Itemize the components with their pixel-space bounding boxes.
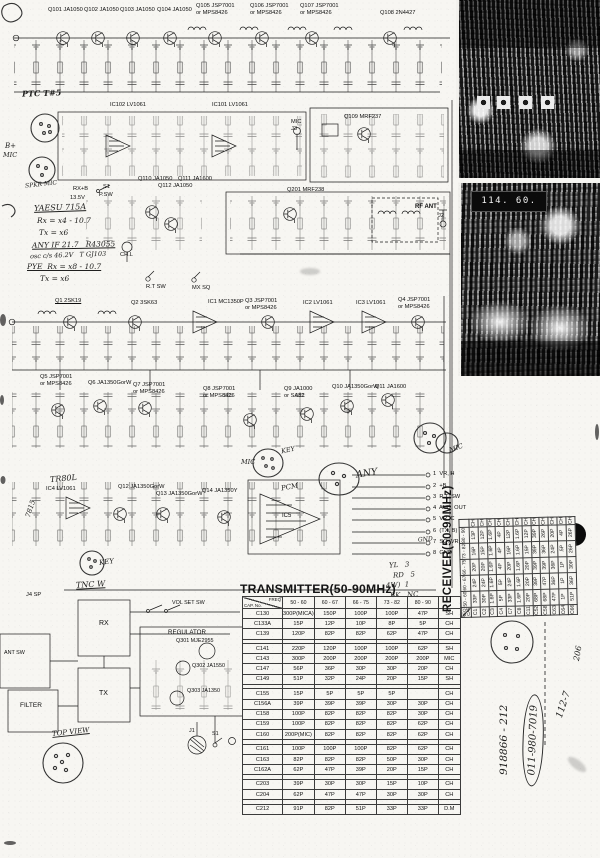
pin-label: 1 VR, H <box>433 471 455 478</box>
cap-value-cell: 82P <box>376 730 407 740</box>
handwritten-serial: 918866 - 212 <box>498 705 510 775</box>
handwritten-note: TNC W <box>76 579 106 590</box>
connector-label: J2 <box>438 213 444 220</box>
cap-value-cell: 68P <box>532 589 541 605</box>
cap-row: C130300P(MICA)150P100P100P47PSH <box>243 609 461 619</box>
cap-value-cell: 51P <box>568 588 577 604</box>
cap-number-cell: C159 <box>243 719 283 729</box>
corner-top-label: FREQ <box>269 597 281 602</box>
cap-value-cell: 30P <box>567 556 576 572</box>
cap-value-cell: 62P <box>407 719 438 729</box>
cap-value-cell: 4P <box>496 558 505 574</box>
cap-value-cell: 1.6P <box>487 527 496 543</box>
cap-type-cell: CH <box>438 664 460 674</box>
cap-value-cell: 12P <box>504 526 513 542</box>
cap-value-cell: 1.6P <box>514 542 523 558</box>
cap-value-cell: 1.6P <box>488 558 497 574</box>
cap-value-cell: 5P <box>314 689 345 699</box>
cap-number-cell: C203 <box>243 779 283 789</box>
component-label: IC1 MC1350P <box>208 299 244 306</box>
cap-value-cell: 20P <box>523 573 532 589</box>
cap-value-cell: 82P <box>345 719 376 729</box>
photo-dark-band <box>461 341 600 376</box>
cap-row: C158100P82P82P82P30PCH <box>243 709 461 719</box>
cap-value-cell: 36P <box>549 557 558 573</box>
cap-type-cell: CH <box>438 619 460 629</box>
cap-number-cell: C158 <box>243 709 283 719</box>
cap-value-cell: 20P <box>523 557 532 573</box>
switch-label: R.T SW <box>146 284 166 291</box>
cap-type-cell: CH <box>438 709 460 719</box>
cap-row: C6651P36P30P26P26PCH <box>566 516 577 615</box>
cap-number-cell: C143 <box>243 654 283 664</box>
cap-value-cell: 82P <box>345 709 376 719</box>
cap-number-cell: C161 <box>243 744 283 754</box>
photo-dark-band <box>459 0 600 48</box>
cap-number-cell: C2 <box>480 606 489 617</box>
component-label: Q5 JSP7001 or MPS8426 <box>40 374 72 388</box>
cap-value-cell: 24P <box>345 674 376 684</box>
cap-number-cell: C63 <box>550 605 559 616</box>
cap-row: C14756P36P30P30P20PCH <box>243 664 461 674</box>
trimmer-capacitor <box>497 96 510 109</box>
cap-value-cell: 100P <box>345 744 376 754</box>
cap-type-cell: CH <box>539 517 548 526</box>
cap-value-cell: 1P <box>558 557 567 573</box>
supply-label: 13.5V <box>70 195 85 202</box>
cap-row: C20462P47P47P30P30PCH <box>243 790 461 800</box>
cap-row: C21291P82P51P33P33PD.M <box>243 804 461 814</box>
cap-number-cell: C147 <box>243 664 283 674</box>
cap-value-cell: 30P <box>376 790 407 800</box>
pcb-photo-top <box>456 0 600 178</box>
cap-value-cell: 200P(MIC) <box>283 730 315 740</box>
component-label: IC3 LV1061 <box>356 300 386 307</box>
cap-value-cell: 15P <box>522 542 531 558</box>
cap-value-cell: 12P <box>314 619 345 629</box>
cap-value-cell: 39P <box>532 557 541 573</box>
cap-value-cell: 1.6P <box>487 542 496 558</box>
cap-number-cell: C204 <box>243 790 283 800</box>
cap-value-cell: 5P <box>497 590 506 606</box>
freq-column-header: 60 - 67 <box>314 597 345 609</box>
freq-column-header: 66 - 75 <box>460 559 470 575</box>
component-label: Q9 JA1000 or SA82 <box>284 386 312 400</box>
component-label: Q8 JSP7001 or MPS8426 <box>203 386 235 400</box>
cap-type-cell: SH <box>438 644 460 654</box>
cap-value-cell: 24P <box>506 574 515 590</box>
cap-value-cell: 30P <box>376 664 407 674</box>
cap-value-cell: 20P <box>548 525 557 541</box>
cap-number-cell: C163 <box>243 754 283 764</box>
cap-number-cell: C3 <box>489 606 498 617</box>
corner-bottom-label: CAP. No. <box>244 603 262 608</box>
cap-value-cell: 15P <box>283 619 315 629</box>
cap-value-cell: 1.6P <box>514 574 523 590</box>
mic-jack-label: MIC J3 <box>291 119 301 133</box>
cap-value-cell: 36P <box>540 541 549 557</box>
cap-value-cell: 47P <box>550 589 559 605</box>
transmitter-cap-table: FREQCAP. No.50 - 6060 - 6766 - 7573 - 82… <box>242 596 461 815</box>
cap-value-cell: 20P <box>407 664 438 674</box>
cap-type-cell: CH <box>438 765 460 775</box>
cap-value-cell: 33P <box>407 804 438 814</box>
cap-value-cell: 62P <box>407 644 438 654</box>
handwritten-note: YL 3 <box>389 560 410 569</box>
cap-value-cell: 15P <box>407 765 438 775</box>
component-label: Q7 JSP7001 or MPS8426 <box>133 382 165 396</box>
trimmer-capacitor <box>541 96 554 109</box>
cap-number-cell: C149 <box>243 674 283 684</box>
freq-column-header: 80 - 90 <box>407 597 438 609</box>
handwritten-note: RD 5 <box>393 570 415 579</box>
cap-row: C139120P82P82P62P47PCH <box>243 629 461 639</box>
cap-value-cell: 82P <box>314 754 345 764</box>
cap-type-cell: CH <box>438 689 460 699</box>
cap-type-cell: CH <box>548 517 557 526</box>
component-label: Q108 2N4427 <box>380 10 415 17</box>
cap-value-cell: 82P <box>314 709 345 719</box>
corner-bottom-label: CAP. No. <box>465 607 470 616</box>
component-label: Q104 JA1050 <box>157 7 192 14</box>
cap-value-cell: 4P <box>557 525 566 541</box>
component-label: Q13 JA1350GorW <box>156 491 202 498</box>
cap-number-cell: C155 <box>243 689 283 699</box>
tx-block-label: TX <box>99 690 108 699</box>
cap-value-cell: 30P <box>376 699 407 709</box>
cap-value-cell: 47P <box>314 790 345 800</box>
cap-type-cell: CH <box>438 790 460 800</box>
component-label: Q107 JSP7001 or MPS8426 <box>300 3 339 17</box>
component-label: Q201 MRF238 <box>287 187 324 194</box>
cap-row: C14951P32P24P20P15PSH <box>243 674 461 684</box>
pcb-photo-middle: 114. 60. <box>458 183 600 376</box>
component-label: Q10 JA1350GorW <box>332 384 378 391</box>
cap-value-cell: 100P <box>345 644 376 654</box>
cap-value-cell: 120P <box>283 629 315 639</box>
cap-row: C15515P5P5P5PCH <box>243 689 461 699</box>
cap-value-cell: 39P <box>283 699 315 709</box>
component-label: Q105 JSP7001 or MPS8426 <box>196 3 235 17</box>
handwritten-note: MIC <box>241 458 255 466</box>
cap-value-cell: 100P <box>283 744 315 754</box>
cap-row: C160200P(MIC)82P82P82P62PCH <box>243 730 461 740</box>
cap-value-cell: 51P <box>283 674 315 684</box>
trimmer-capacitor <box>477 96 490 109</box>
freq-column-header: 73 - 82 <box>460 543 470 559</box>
cap-value-cell: 300P(MICA) <box>283 609 315 619</box>
cap-value-cell: 39P <box>540 557 549 573</box>
cap-value-cell: 30P <box>314 779 345 789</box>
cap-value-cell: 82P <box>376 709 407 719</box>
cap-type-cell: CH <box>513 517 522 526</box>
cap-value-cell: 15P <box>376 779 407 789</box>
cap-number-cell: C141 <box>243 644 283 654</box>
cap-value-cell: 82P <box>283 754 315 764</box>
component-label: Q112 JA1050 <box>158 183 192 190</box>
cap-value-cell: 39P <box>345 699 376 709</box>
cap-value-cell: 8P <box>376 619 407 629</box>
cap-type-cell: CH <box>469 519 478 528</box>
cap-value-cell: 15P <box>283 689 315 699</box>
cap-value-cell: 26P <box>566 524 575 540</box>
transmitter-table-title: TRANSMITTER(50-90MHz) <box>240 582 396 596</box>
cap-value-cell: 82P <box>376 744 407 754</box>
cap-row: C159100P82P82P82P62PCH <box>243 719 461 729</box>
cap-type-cell: CH <box>478 518 487 527</box>
cap-value-cell: 39P <box>345 765 376 775</box>
switch-label: P.SW <box>99 192 113 199</box>
handwritten-note: Tx = x6 <box>39 228 68 237</box>
freq-column-header: 80 - 90 <box>459 527 469 543</box>
rail-label: RX+B <box>73 186 88 193</box>
cap-value-cell: 20P <box>376 674 407 684</box>
cap-value-cell: 20P <box>505 558 514 574</box>
cap-number-cell: C139 <box>243 629 283 639</box>
cap-value-cell: 5P <box>376 689 407 699</box>
component-label: IC5 <box>282 513 291 521</box>
cap-number-cell: C4 <box>498 606 507 617</box>
cap-type-cell: CH <box>486 518 495 527</box>
trimmer-capacitor <box>519 96 532 109</box>
cap-value-cell: 39P <box>283 779 315 789</box>
cap-value-cell: 12P <box>478 527 487 543</box>
cap-value-cell: 51P <box>345 804 376 814</box>
component-label: Q103 JA1050 <box>120 7 155 14</box>
switch-label: S1 <box>103 184 110 191</box>
handwritten-note: MIC <box>3 151 17 159</box>
photo-highlight <box>469 301 531 343</box>
cap-number-cell: C66 <box>568 604 577 615</box>
cap-value-cell: 62P <box>283 790 315 800</box>
speaker-jack-label: J4 SP <box>26 592 41 599</box>
cap-value-cell: 26P <box>539 525 548 541</box>
cap-type-cell: CH <box>438 779 460 789</box>
cap-value-cell: 30P <box>345 664 376 674</box>
component-label: Q1 2SK19 <box>55 298 81 305</box>
handwritten-note: GND <box>418 535 433 543</box>
cap-type-cell: CH <box>504 518 513 527</box>
regulator-label: REGULATOR <box>168 629 206 637</box>
cap-number-cell: C1 <box>471 607 480 618</box>
cap-number-cell: C156A <box>243 699 283 709</box>
cap-value-cell: 100P <box>283 709 315 719</box>
cap-value-cell: 5P <box>345 689 376 699</box>
cap-value-cell: 20P <box>376 765 407 775</box>
cap-type-cell: CH <box>438 699 460 709</box>
handwritten-note: ANY IF 21.7 R43055 <box>32 239 115 249</box>
cap-value-cell: 24P <box>549 541 558 557</box>
component-label: Q109 MRF237 <box>344 114 381 121</box>
type-column-header <box>459 519 469 528</box>
component-label: IC4 LV1061 <box>46 486 76 493</box>
cap-value-cell: 30P <box>480 590 489 606</box>
cap-value-cell: 36P <box>567 572 576 588</box>
cap-value-cell: 20P <box>479 559 488 575</box>
receiver-table-title: RECEIVER(50-90MHz) <box>442 485 454 612</box>
photo-dark-band <box>459 150 600 178</box>
component-label: IC2 LV1061 <box>303 300 333 307</box>
cap-value-cell: 200P <box>345 654 376 664</box>
cap-value-cell: 56P <box>283 664 315 674</box>
cap-row: C156A39P39P39P30P30PCH <box>243 699 461 709</box>
cap-value-cell: 4P <box>496 526 505 542</box>
component-label: Q106 JSP7001 or MPS8426 <box>250 3 289 17</box>
switch-label: VOL SET SW <box>172 600 205 607</box>
cap-type-cell: CH <box>557 516 566 525</box>
cap-value-cell: 100P <box>376 644 407 654</box>
cap-value-cell: 15P <box>407 674 438 684</box>
cap-value-cell: 1.6P <box>488 590 497 606</box>
cap-value-cell: 1.6P <box>514 558 523 574</box>
cap-value-cell: 120P <box>314 644 345 654</box>
table-corner-cell: FREQCAP. No. <box>243 597 283 609</box>
header-row: FREQCAP. No.50 - 6060 - 6766 - 7573 - 82… <box>243 597 461 609</box>
cap-value-cell: 47P <box>407 609 438 619</box>
cap-value-cell: 100P <box>283 719 315 729</box>
cap-value-cell: 1P <box>559 588 568 604</box>
cap-value-cell: 100P <box>345 609 376 619</box>
cap-number-cell: C162A <box>243 765 283 775</box>
switch-label: ANT SW <box>4 650 25 657</box>
cap-value-cell: 62P <box>407 744 438 754</box>
cap-value-cell: 62P <box>283 765 315 775</box>
rx-block-label: RX <box>99 620 109 629</box>
cap-number-cell: C52 <box>533 605 542 616</box>
cap-value-cell: 39P <box>314 699 345 709</box>
handwritten-note: PYE Rx = x8 - 10.7 <box>27 262 101 271</box>
cap-value-cell: 5P <box>407 619 438 629</box>
cap-number-cell: C133A <box>243 619 283 629</box>
cap-number-cell: C58 <box>542 605 551 616</box>
cap-value-cell: 47P <box>541 573 550 589</box>
cap-number-cell: C64 <box>559 604 568 615</box>
cap-value-cell: 1.6P <box>515 590 524 606</box>
component-label: Q102 JA1050 <box>84 7 119 14</box>
component-label: Q2 3SK63 <box>131 300 157 307</box>
cap-value-cell: 20P <box>524 589 533 605</box>
cap-value-cell: .5P <box>557 541 566 557</box>
cap-value-cell: 39P <box>531 541 540 557</box>
handwritten-note: YAESU 715A <box>34 202 86 213</box>
cap-value-cell: 200P <box>407 654 438 664</box>
cap-value-cell: 220P <box>283 644 315 654</box>
component-label: Q4 JSP7001 or MPS8426 <box>398 297 430 311</box>
cap-value-cell: 47P <box>314 765 345 775</box>
cap-value-cell: 33P <box>506 590 515 606</box>
cap-value-cell: 82P <box>345 629 376 639</box>
cap-value-cell: 68P <box>541 589 550 605</box>
scanned-schematic-page: 114. 60. Q101 JA1050 Q102 JA1050 Q103 JA… <box>0 0 600 858</box>
cap-type-cell: CH <box>530 517 539 526</box>
component-label: Q3 JSP7001 or MPS8426 <box>245 298 277 312</box>
component-label: Q6 JA1350GorW <box>88 380 131 387</box>
freq-column-header: 73 - 82 <box>376 597 407 609</box>
cap-value-cell: 24P <box>470 575 479 591</box>
freq-column-header: 50 - 60 <box>461 591 471 607</box>
cap-value-cell: 47P <box>345 790 376 800</box>
receiver-cap-table: FREQCAP. No.50 - 6060 - 6766 - 7573 - 82… <box>458 516 577 618</box>
cap-number-cell: C212 <box>243 804 283 814</box>
lamp-label: CH.L <box>120 252 133 259</box>
cap-value-cell: 24P <box>479 575 488 591</box>
cap-number-cell: C11 <box>524 605 533 616</box>
cap-row: C141220P120P100P100P62PSH <box>243 644 461 654</box>
cap-value-cell: 50P <box>376 754 407 764</box>
cap-type-cell: CH <box>522 517 531 526</box>
cap-type-cell: D.M <box>438 804 460 814</box>
component-label: Q101 JA1050 <box>48 7 83 14</box>
cap-value-cell: 20P <box>470 559 479 575</box>
cap-value-cell: 150P <box>314 609 345 619</box>
cap-value-cell: 32P <box>314 674 345 684</box>
cap-value-cell: 91P <box>283 804 315 814</box>
cap-type-cell: CH <box>438 730 460 740</box>
cap-value-cell: 82P <box>345 754 376 764</box>
cap-number-cell: C130 <box>243 609 283 619</box>
component-label: Q302 JA1550 <box>192 663 225 670</box>
cap-value-cell: 39P <box>531 525 540 541</box>
component-label: Q11 JA1600 <box>375 384 406 391</box>
cap-value-cell <box>407 689 438 699</box>
cap-value-cell: 1.6P <box>513 526 522 542</box>
cap-value-cell: 47P <box>407 629 438 639</box>
cap-value-cell: 30P <box>407 754 438 764</box>
rf-ant-label: RF ANT <box>415 204 437 212</box>
cap-value-cell: 16P <box>470 543 479 559</box>
cap-type-cell: MIC <box>438 654 460 664</box>
cap-value-cell: 15P <box>478 543 487 559</box>
cap-value-cell: 82P <box>314 804 345 814</box>
handwritten-note: Rx = x4 - 10.7 <box>37 216 91 225</box>
component-label: Q14 JA1350Y <box>202 488 237 495</box>
cap-value-cell: 100P <box>314 744 345 754</box>
handwritten-note: B+ <box>5 142 16 150</box>
cap-value-cell: 30P <box>345 779 376 789</box>
cap-type-cell: CH <box>495 518 504 527</box>
filter-label: FILTER <box>20 702 42 710</box>
cap-value-cell: 82P <box>376 719 407 729</box>
cap-value-cell: 62P <box>376 629 407 639</box>
cap-number-cell: C160 <box>243 730 283 740</box>
cap-type-cell: SH <box>438 674 460 684</box>
cap-value-cell: 16P <box>505 542 514 558</box>
component-label: IC102 LV1061 <box>110 102 146 109</box>
component-label: Q303 JA1350 <box>187 688 220 695</box>
cap-value-cell: 1.6P <box>488 574 497 590</box>
cap-value-cell: 30P <box>407 699 438 709</box>
frequency-display: 114. 60. <box>471 191 547 212</box>
cap-type-cell: CH <box>566 516 575 525</box>
cap-number-cell: C7 <box>506 606 515 617</box>
cap-row: C161100P100P100P82P62PCH <box>243 744 461 754</box>
cap-value-cell: 33P <box>471 591 480 607</box>
cap-value-cell: 10P <box>407 779 438 789</box>
cap-value-cell: 36P <box>314 664 345 674</box>
cap-value-cell: 4P <box>496 542 505 558</box>
cap-type-cell: CH <box>438 744 460 754</box>
handwritten-note: Tx = x6 <box>40 274 69 283</box>
cap-value-cell: 13P <box>469 527 478 543</box>
cap-value-cell: 82P <box>345 730 376 740</box>
scan-smudge <box>300 268 320 275</box>
cap-value-cell: 30P <box>407 790 438 800</box>
cap-value-cell: 39P <box>532 573 541 589</box>
cap-value-cell: 82P <box>314 629 345 639</box>
handwritten-note: PTC T#5 <box>22 87 62 98</box>
cap-type-cell: CH <box>438 719 460 729</box>
cap-number-cell: C8 <box>515 605 524 616</box>
